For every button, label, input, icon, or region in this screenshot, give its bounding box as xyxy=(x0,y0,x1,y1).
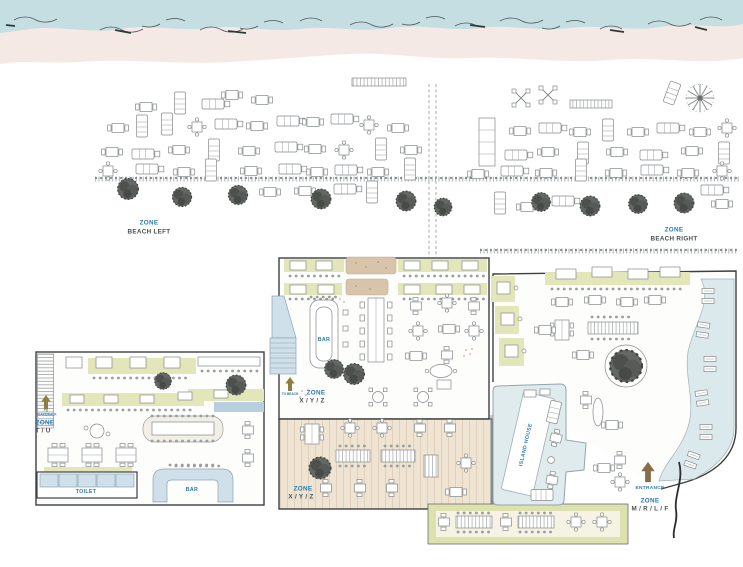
zone-tu-name: T / U xyxy=(35,427,50,434)
water-feature-strip xyxy=(214,402,264,412)
beach-right-furniture xyxy=(468,81,737,216)
tu-building xyxy=(36,352,312,505)
bar-indoor-label: BAR xyxy=(318,337,330,343)
zone-beach-left-label: ZONE xyxy=(140,219,159,226)
toilet-label: TOILET xyxy=(76,489,97,495)
indoor-xyz-building xyxy=(270,257,489,419)
entrance-label: ENTRANCE xyxy=(635,486,664,492)
zone-indoor-name: X / Y / Z xyxy=(299,397,324,404)
beach-left-furniture xyxy=(99,78,452,216)
zone-mrlf-name: M / R / L / F xyxy=(631,505,668,512)
map-drawing xyxy=(0,0,743,567)
patio-olive xyxy=(428,504,628,544)
stairs xyxy=(270,338,296,374)
beach-club-floor-plan: ZONE BEACH LEFT ZONE BEACH RIGHT TO BEAC… xyxy=(0,0,743,567)
tree-icon xyxy=(118,179,452,216)
zone-beach-right-name: BEACH RIGHT xyxy=(650,235,697,242)
tree-icon xyxy=(309,457,331,479)
zone-tu-label: ZONE xyxy=(36,419,55,426)
tree-icon xyxy=(610,350,643,383)
to-boardwalk-caption: TO BOARDWALK xyxy=(35,409,57,416)
boardwalk-steps xyxy=(38,354,54,428)
sea-and-sand xyxy=(0,0,743,64)
communal-table-tu xyxy=(143,416,223,442)
zone-mrlf-label: ZONE xyxy=(641,497,660,504)
palm-tree-icon xyxy=(686,84,715,113)
zone-terrace-label: ZONE xyxy=(294,485,313,492)
to-beach-caption: TO BEACH xyxy=(282,393,299,397)
zone-terrace-name: X / Y / Z xyxy=(288,493,313,500)
zone-indoor-label: ZONE xyxy=(307,389,326,396)
zone-beach-right-label: ZONE xyxy=(665,226,684,233)
bar-left-label: BAR xyxy=(186,487,198,493)
zone-beach-left-name: BEACH LEFT xyxy=(128,228,171,235)
communal-table-right xyxy=(588,322,638,334)
